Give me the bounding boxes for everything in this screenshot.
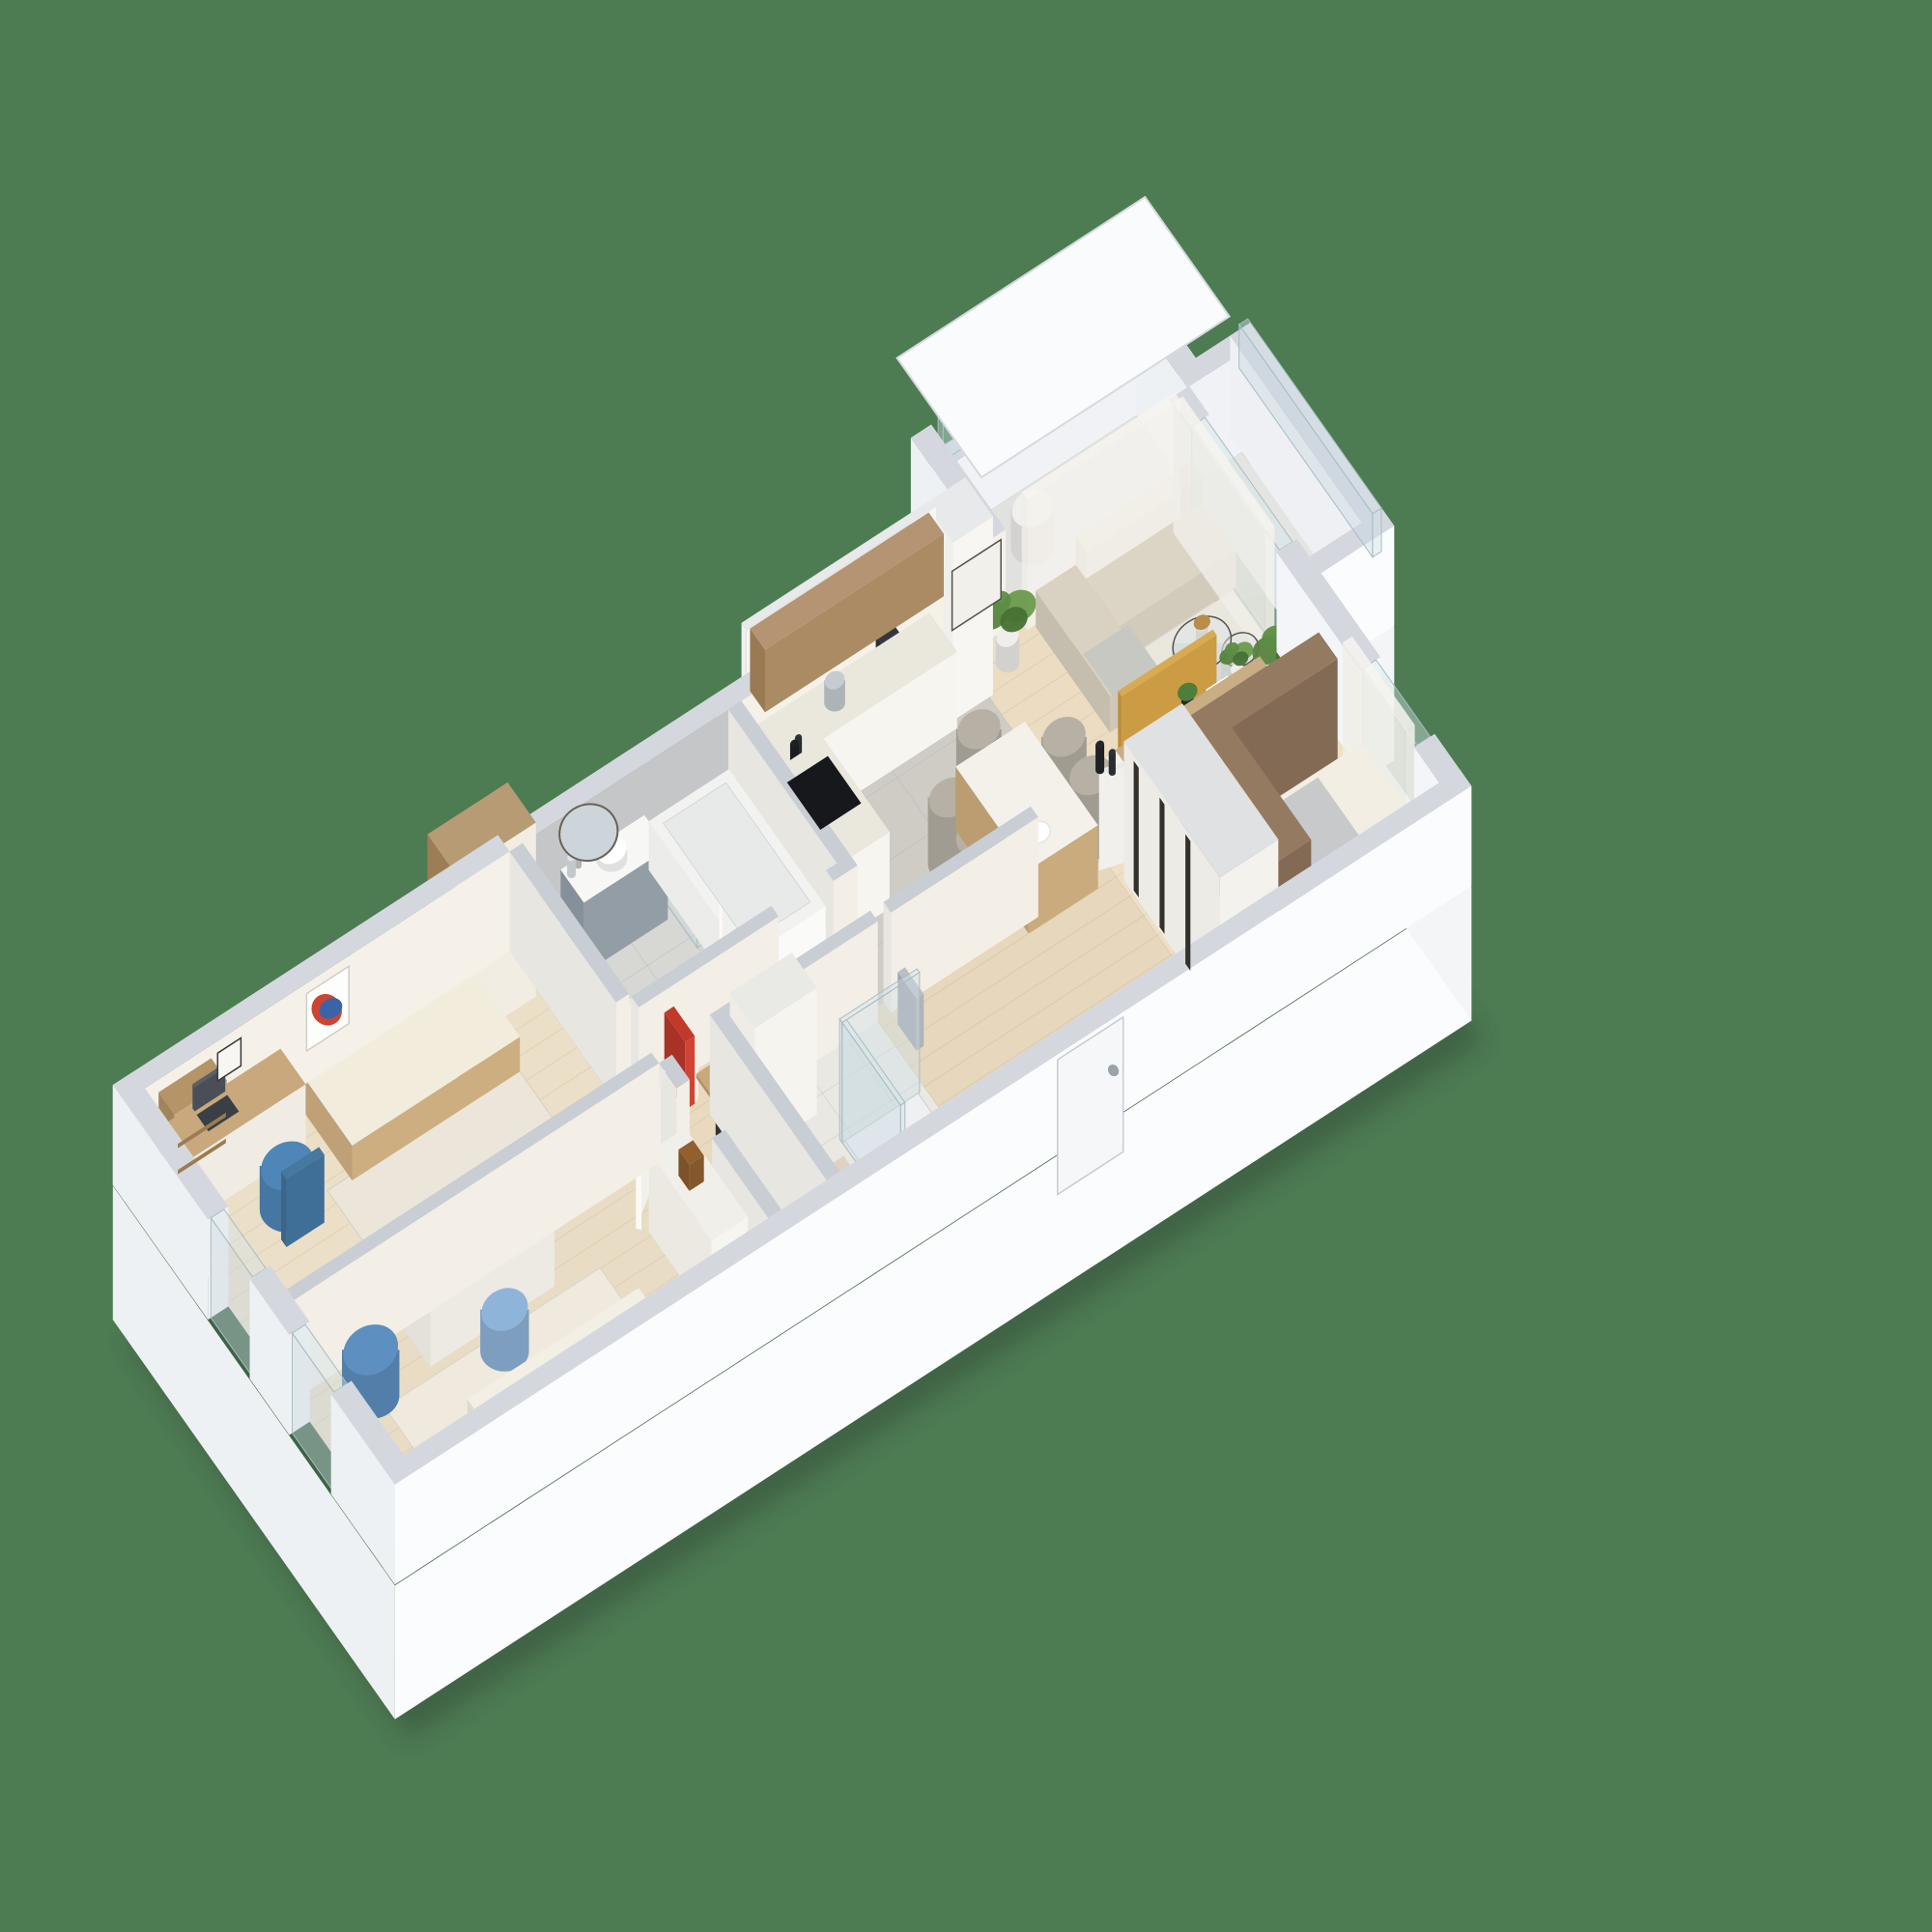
wardrobe-mirror-strip-3	[1185, 835, 1190, 971]
wardrobe-mirror-strip-1	[1134, 761, 1139, 897]
pedestal-bottle-2	[1108, 748, 1117, 776]
pedestal-bottle-1	[1094, 739, 1106, 774]
floor-plan-render	[0, 0, 1932, 1932]
wardrobe-mirror-strip-2	[1159, 798, 1164, 935]
floor-plan-stage	[0, 0, 1932, 1932]
